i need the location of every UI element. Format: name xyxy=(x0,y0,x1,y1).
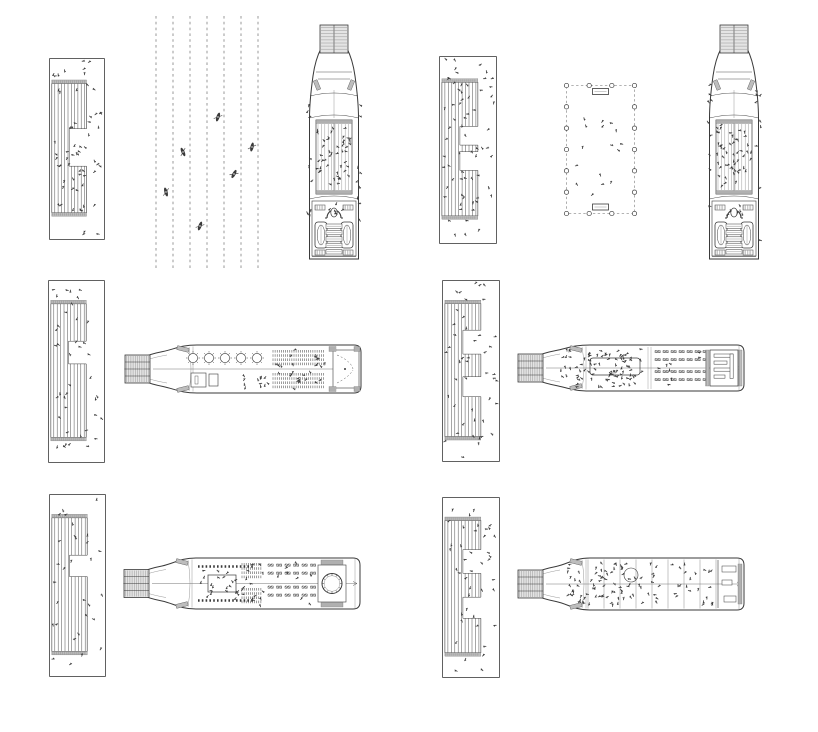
pier-plan-5 xyxy=(49,494,106,677)
pier-plan-2 xyxy=(439,56,497,244)
pier-plan-1 xyxy=(49,58,105,240)
kayak-lane-plan xyxy=(150,16,264,270)
ship-deck-plan-horizontal-2 xyxy=(516,343,746,393)
ship-deck-plan-vertical-1 xyxy=(306,22,362,262)
ship-deck-plan-horizontal-1 xyxy=(123,343,363,395)
pier-plan-6 xyxy=(442,497,500,678)
ship-deck-plan-horizontal-3 xyxy=(122,556,362,611)
pier-plan-4 xyxy=(442,280,500,462)
pier-plan-3 xyxy=(48,280,105,463)
colonnade-plan xyxy=(563,82,638,217)
ship-deck-plan-vertical-2 xyxy=(706,22,762,262)
ship-deck-plan-horizontal-4 xyxy=(516,556,746,612)
drawing-canvas xyxy=(0,0,818,732)
